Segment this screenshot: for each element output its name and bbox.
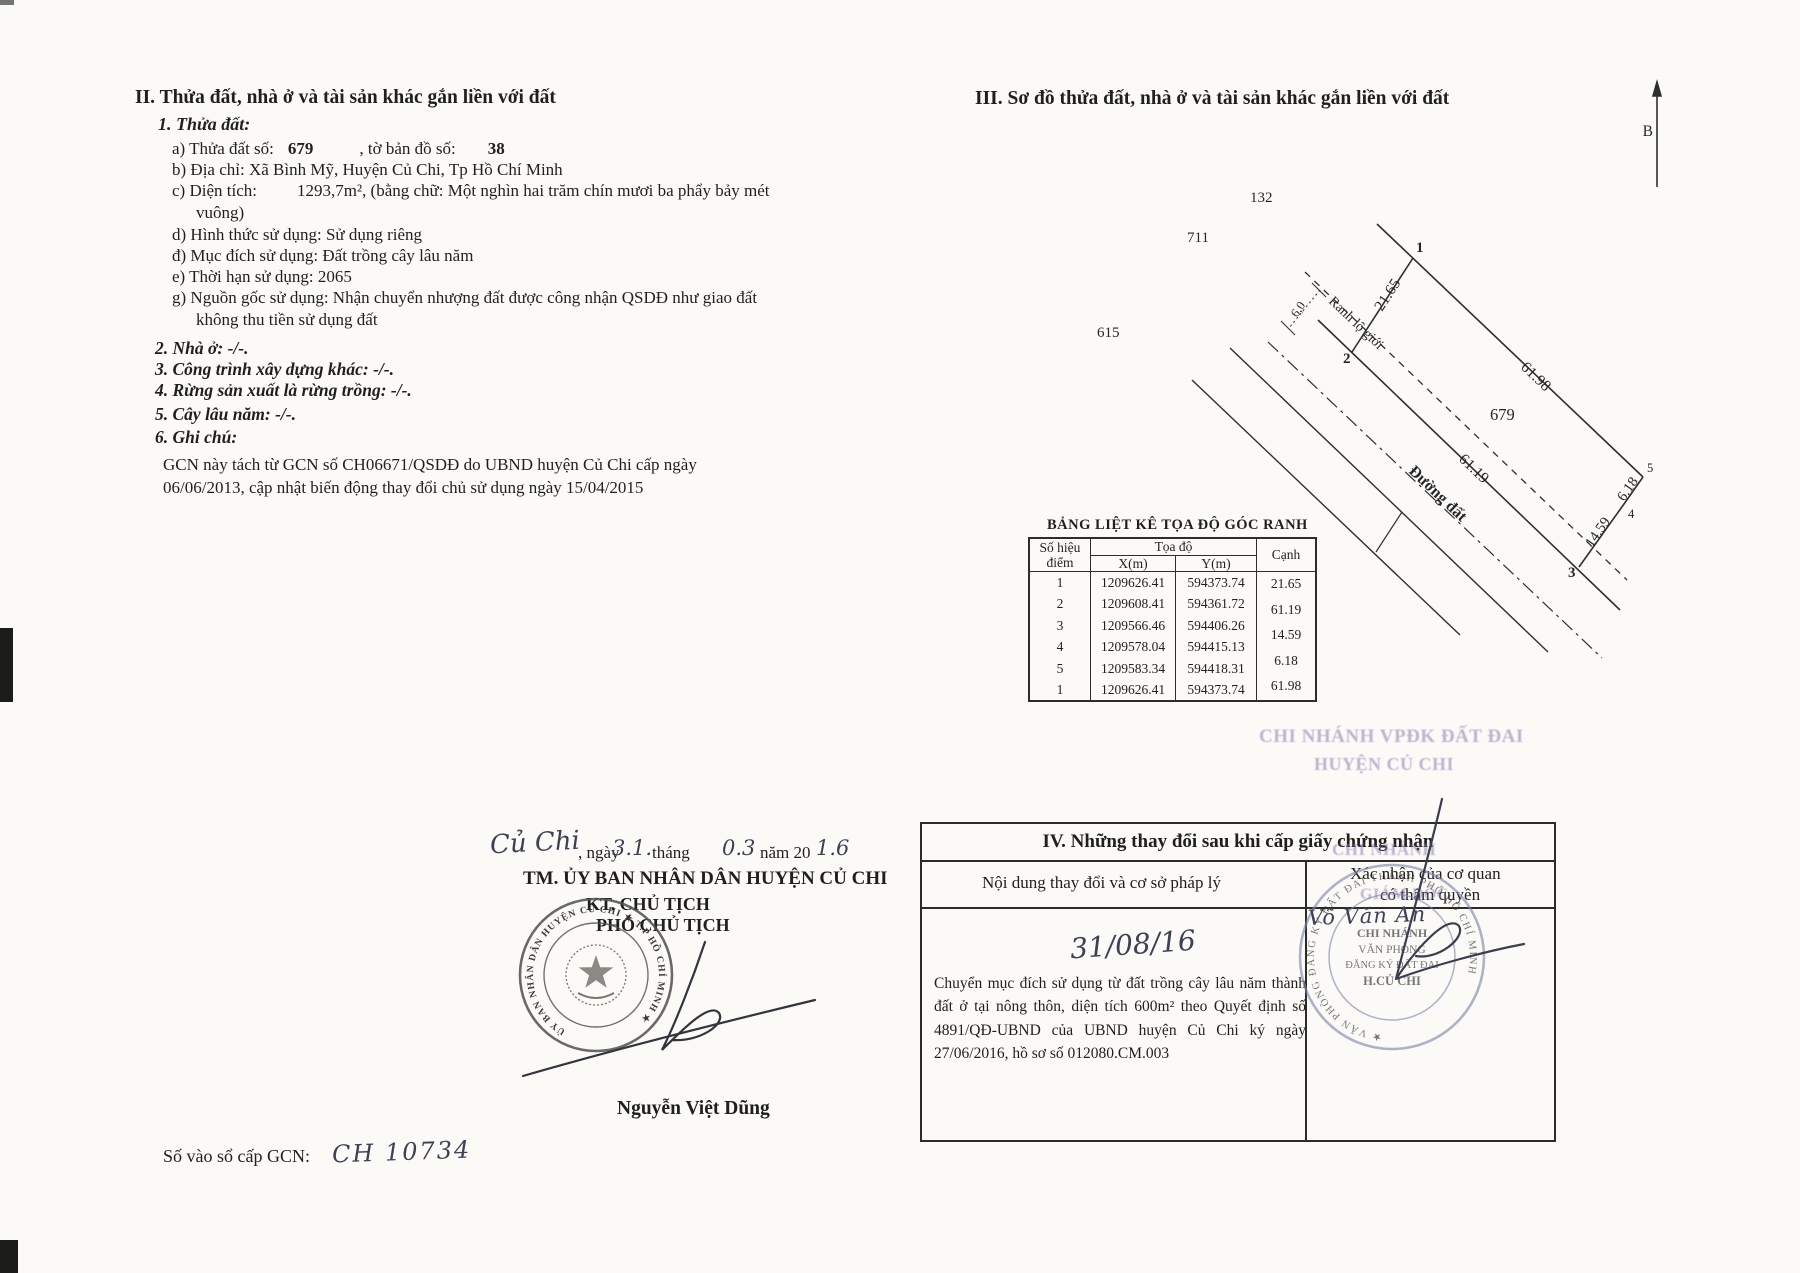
chairman-signature — [500, 930, 830, 1090]
north-arrowhead — [1653, 82, 1661, 96]
address-line: b) Địa chỉ: Xã Bình Mỹ, Huyện Củ Chi, Tp… — [172, 160, 563, 180]
point-3-label: 3 — [1568, 565, 1576, 581]
coord-table-title: BẢNG LIỆT KÊ TỌA ĐỘ GÓC RANH — [1047, 517, 1308, 534]
map-sheet-value: 38 — [488, 139, 505, 158]
scan-edge-mark — [0, 628, 13, 702]
change-content: Chuyển mục đích sử dụng từ đất trồng cây… — [934, 972, 1306, 1065]
office-stamp-text-line1: CHI NHÁNH VPĐK ĐẤT ĐAI — [1259, 726, 1524, 748]
signer-name: Nguyễn Việt Dũng — [617, 1098, 770, 1120]
map-sheet-label: , tờ bản đồ số: — [359, 139, 455, 158]
sign-month-handwritten: 0.3 — [722, 836, 755, 860]
col-coord-header: Tọa độ — [1091, 538, 1257, 555]
edge-value: 6.18 — [1260, 653, 1312, 669]
point-5-label: 5 — [1647, 461, 1653, 475]
neighbor-parcel-bottom: 615 — [1097, 325, 1120, 341]
sign-year-handwritten: 1.6 — [816, 836, 849, 860]
col-edge-header: Cạnh — [1257, 538, 1317, 572]
section2-title: II. Thửa đất, nhà ở và tài sản khác gắn … — [135, 87, 556, 109]
edge-12-length: 21.65 — [1371, 275, 1404, 314]
note-line2: 06/06/2013, cập nhật biến động thay đổi … — [163, 478, 643, 498]
scan-edge-mark — [0, 0, 14, 5]
item-perennial: 5. Cây lâu năm: -/-. — [155, 404, 296, 425]
scanned-land-certificate-page: II. Thửa đất, nhà ở và tài sản khác gắn … — [0, 0, 1800, 1273]
road-label: Đường đất — [1405, 463, 1470, 526]
gcn-book-value-handwritten: CH 10734 — [332, 1136, 472, 1169]
item-house: 2. Nhà ở: -/-. — [155, 338, 248, 359]
col-y-header: Y(m) — [1176, 555, 1257, 572]
use-form-line: d) Hình thức sử dụng: Sử dụng riêng — [172, 225, 422, 245]
branch-tick — [1376, 512, 1402, 552]
edge-value: 21.65 — [1260, 576, 1312, 592]
edge-51-length: 61.98 — [1517, 359, 1554, 396]
use-origin-line: g) Nguồn gốc sử dụng: Nhận chuyển nhượng… — [172, 288, 757, 308]
office-stamp-text-line2: HUYỆN CỦ CHI — [1314, 754, 1454, 775]
use-purpose-line: đ) Mục đích sử dụng: Đất trồng cây lâu n… — [172, 246, 473, 266]
use-term-line: e) Thời hạn sử dụng: 2065 — [172, 267, 352, 287]
north-label: B — [1643, 123, 1653, 140]
edge-value: 61.98 — [1260, 678, 1312, 694]
point-2-label: 2 — [1343, 351, 1351, 367]
sign-month-label: tháng — [652, 843, 690, 863]
item-notes: 6. Ghi chú: — [155, 427, 237, 448]
scan-edge-mark — [0, 1240, 18, 1273]
col-point-header1: Số hiệu — [1033, 540, 1087, 556]
neighbor-parcel-top: 132 — [1250, 190, 1273, 206]
sign-place-handwritten: Củ Chi — [489, 826, 580, 861]
gcn-book-label: Số vào sổ cấp GCN: — [163, 1146, 310, 1167]
neighbor-parcel-left: 711 — [1187, 230, 1209, 246]
area-line: c) Diện tích:1293,7m², (bằng chữ: Một ng… — [172, 181, 770, 201]
use-origin-wrap: không thu tiền sử dụng đất — [196, 310, 378, 330]
parcel-number-value: 679 — [288, 139, 314, 158]
edge-value: 14.59 — [1260, 627, 1312, 643]
area-line-wrap: vuông) — [196, 203, 244, 223]
edge-1-5 — [1377, 224, 1643, 477]
parcel-number-label: a) Thửa đất số: — [172, 139, 274, 158]
edge-45-length: 6.18 — [1614, 474, 1642, 504]
registrar-name-handwritten: Võ Văn An — [1308, 902, 1427, 930]
sign-year-label: năm 20 — [760, 843, 811, 863]
setback-tick — [1281, 321, 1295, 335]
setback-width-label: 6,0 — [1288, 299, 1308, 320]
parcel-number-label: 679 — [1490, 405, 1515, 424]
note-line1: GCN này tách từ GCN số CH06671/QSDĐ do U… — [163, 455, 697, 475]
parcel-heading: 1. Thửa đất: — [158, 114, 250, 135]
sign-day-handwritten: 3.1. — [612, 836, 652, 860]
item-construction: 3. Công trình xây dựng khác: -/-. — [155, 359, 394, 380]
edge-value: 61.19 — [1260, 602, 1312, 618]
edge-values-cell: 21.65 61.19 14.59 6.18 61.98 — [1257, 572, 1317, 702]
area-value: 1293,7m², (bằng chữ: Một nghìn hai trăm … — [297, 181, 770, 200]
coord-table: Số hiệu điểm Tọa độ Cạnh X(m) Y(m) 1 120… — [1028, 537, 1317, 702]
edge-34-length: 14.59 — [1582, 514, 1614, 550]
section4-table: IV. Những thay đổi sau khi cấp giấy chứn… — [920, 822, 1556, 1142]
coord-row: 1 1209626.41 594373.74 21.65 61.19 14.59… — [1029, 572, 1316, 594]
point-1-label: 1 — [1416, 240, 1424, 256]
col-x-header: X(m) — [1091, 555, 1176, 572]
point-4-label: 4 — [1628, 507, 1635, 521]
item-forest: 4. Rừng sản xuất là rừng trồng: -/-. — [155, 380, 412, 401]
section4-col-content-header: Nội dung thay đổi và cơ sở pháp lý — [982, 873, 1221, 893]
area-label: c) Diện tích: — [172, 181, 257, 200]
parcel-number-line: a) Thửa đất số:679, tờ bản đồ số:38 — [172, 139, 505, 159]
change-date-handwritten: 31/08/16 — [1069, 924, 1197, 966]
col-point-header2: điểm — [1033, 555, 1087, 571]
sign-authority-line: TM. ỦY BAN NHÂN DÂN HUYỆN CỦ CHI — [523, 868, 888, 890]
